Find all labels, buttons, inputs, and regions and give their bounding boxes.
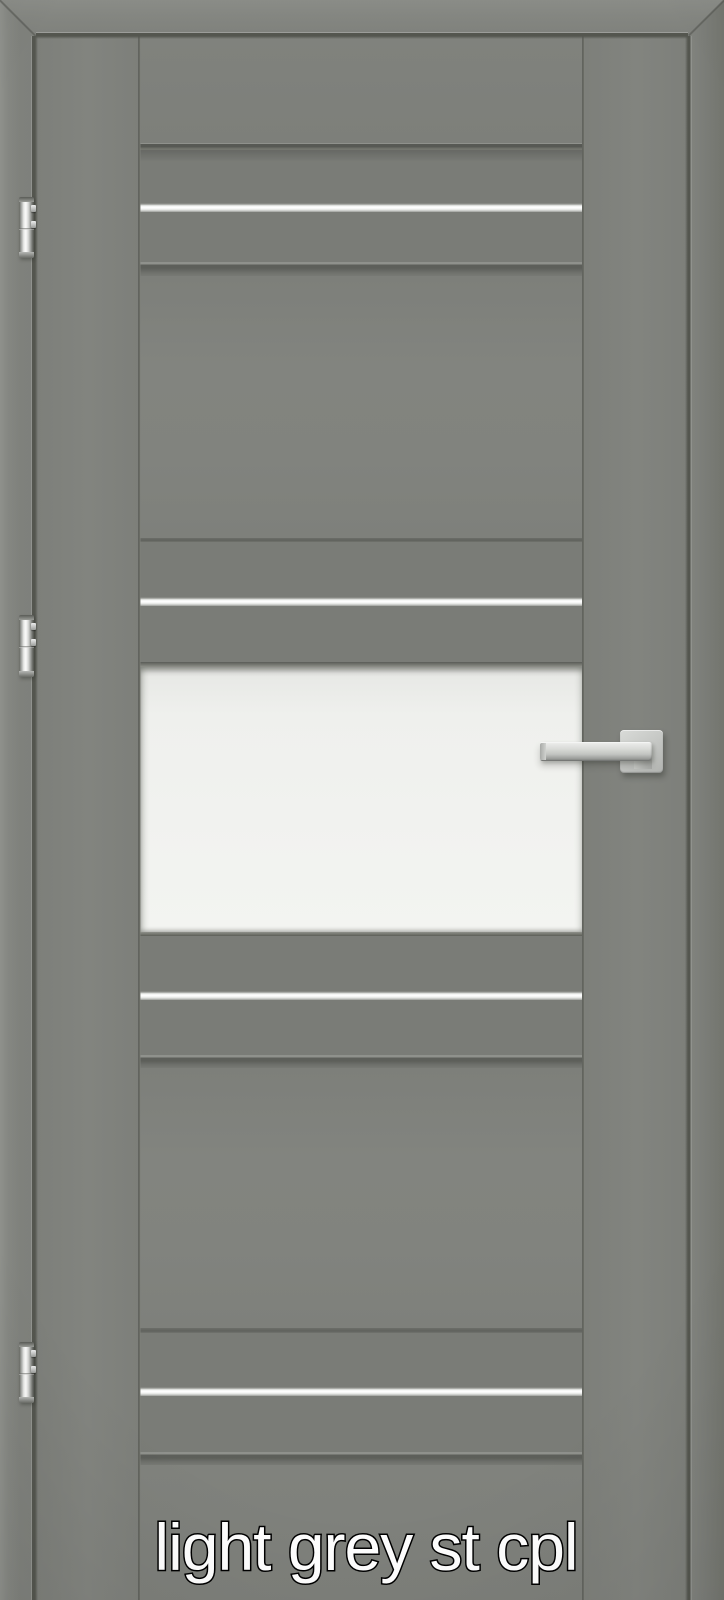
aluminum-strip <box>140 991 584 1000</box>
aluminum-strip <box>140 597 584 606</box>
groove-band <box>140 150 584 203</box>
right-stile <box>585 36 688 1600</box>
groove-band <box>140 1333 584 1387</box>
groove-band <box>140 1396 584 1452</box>
groove-band <box>140 212 584 262</box>
hinge-pin <box>31 623 36 630</box>
hinge-top <box>19 197 34 258</box>
groove-band <box>140 936 584 991</box>
hinge-pin <box>31 1350 36 1357</box>
hinge-seam <box>19 646 34 648</box>
stile-joint-right <box>582 36 585 1600</box>
aluminum-strip <box>140 1387 584 1396</box>
hinge-pin <box>31 1366 36 1373</box>
leaf-gap-right <box>685 36 692 1600</box>
left-stile <box>36 36 140 1600</box>
groove-joint <box>140 262 584 276</box>
door-frame-top <box>0 0 724 36</box>
lower-panel <box>140 1068 584 1328</box>
aluminum-strip <box>140 203 584 212</box>
hinge-pin <box>31 639 36 646</box>
handle-lever <box>540 742 652 761</box>
glass-panel <box>140 667 584 932</box>
door-leaf <box>36 36 688 1600</box>
groove-joint <box>140 1452 584 1465</box>
caption-text: light grey st cpl <box>136 1514 596 1580</box>
leaf-gap-top <box>36 32 688 39</box>
groove-joint <box>140 1055 584 1068</box>
groove-joint <box>140 143 584 150</box>
door-center-column <box>140 36 584 1600</box>
stile-joint-left <box>138 36 141 1600</box>
groove-band <box>140 1000 584 1055</box>
door-frame-right <box>688 0 724 1600</box>
upper-panel <box>140 276 584 538</box>
top-rail <box>140 36 584 143</box>
hinge-pin <box>31 221 36 228</box>
hinge-pin <box>31 205 36 212</box>
groove-band <box>140 542 584 597</box>
groove-band <box>140 606 584 662</box>
hinge-middle <box>19 615 34 677</box>
hinge-bottom <box>19 1342 34 1403</box>
door-product-photo: light grey st cpl <box>0 0 724 1600</box>
